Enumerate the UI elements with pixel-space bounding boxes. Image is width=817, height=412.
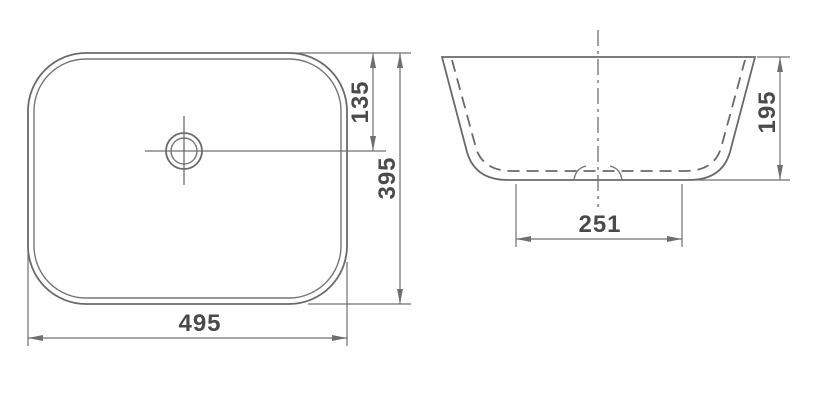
drawing-sheet: 135 395 495	[0, 0, 817, 412]
top-view-outer-rim	[28, 53, 347, 304]
top-view: 135 395 495	[28, 53, 411, 346]
technical-drawing-canvas: 135 395 495	[0, 0, 817, 412]
dimension-label-395: 395	[374, 156, 401, 199]
dimension-label-135: 135	[347, 80, 374, 123]
dimension-base-width: 251	[516, 184, 682, 247]
dimension-drain-offset: 135	[347, 53, 374, 151]
dimension-label-495: 495	[178, 310, 221, 337]
dimension-label-195: 195	[754, 90, 781, 133]
dimension-overall-width: 495	[28, 252, 347, 346]
drain-break-mark-left	[574, 166, 586, 180]
dimension-overall-depth: 395	[374, 53, 401, 304]
dimension-overall-height: 195	[696, 57, 790, 180]
drain-break-mark-right	[610, 166, 622, 180]
side-view: 195 251	[442, 30, 790, 247]
top-view-inner-rim	[34, 59, 341, 298]
dimension-label-251: 251	[578, 211, 621, 238]
